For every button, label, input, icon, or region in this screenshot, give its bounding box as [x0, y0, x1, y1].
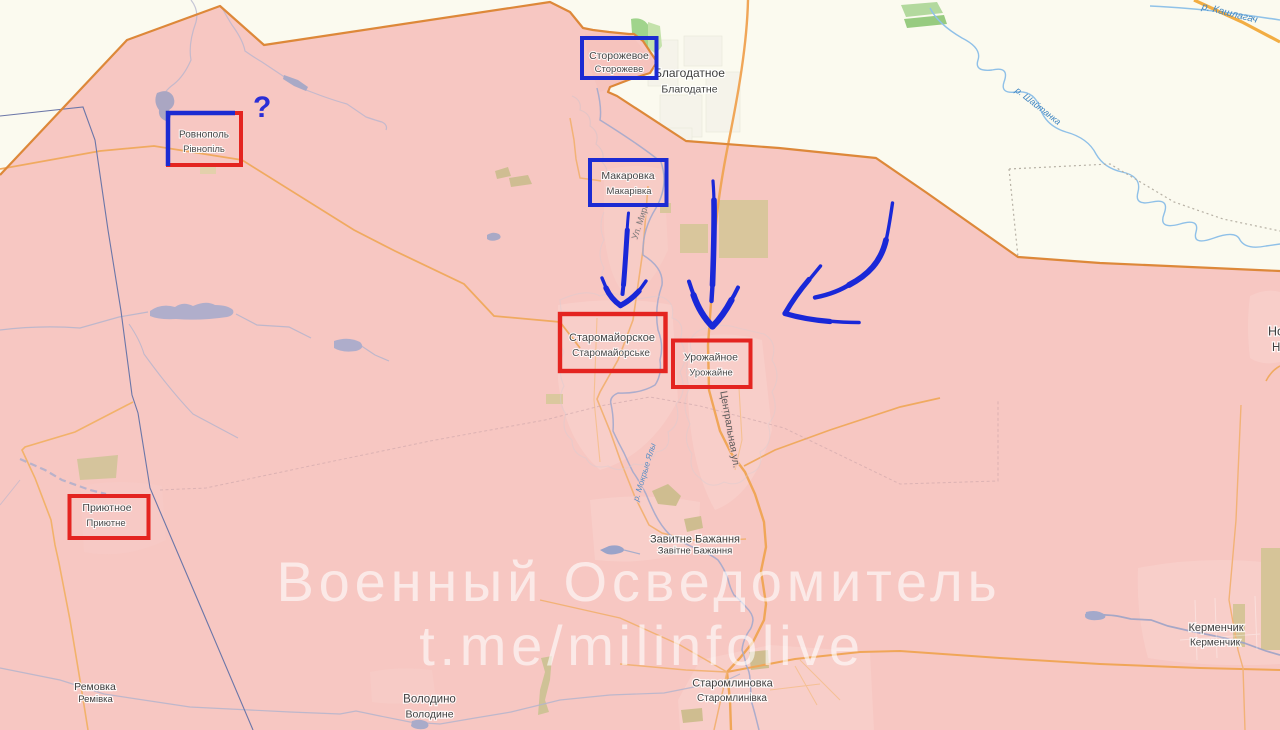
svg-text:Завитне Бажання: Завитне Бажання — [650, 534, 740, 546]
svg-text:Старомайорское: Старомайорское — [569, 332, 655, 344]
svg-text:t.me/milinfolive: t.me/milinfolive — [419, 614, 865, 677]
svg-text:Урожайне: Урожайне — [689, 368, 733, 379]
svg-text:Старомайорське: Старомайорське — [572, 348, 650, 359]
svg-text:Приютне: Приютне — [86, 518, 125, 529]
svg-text:Ново: Ново — [1268, 325, 1280, 339]
svg-text:Рівнопіль: Рівнопіль — [183, 144, 225, 155]
svg-text:Старомлинівка: Старомлинівка — [697, 693, 767, 704]
svg-text:Благодатне: Благодатне — [661, 84, 717, 96]
svg-text:Старомлиновка: Старомлиновка — [692, 678, 773, 690]
svg-text:Керменчик: Керменчик — [1190, 638, 1241, 649]
svg-text:Володине: Володине — [405, 709, 453, 721]
svg-text:Ремівка: Ремівка — [78, 694, 113, 705]
svg-text:Макарівка: Макарівка — [606, 186, 652, 197]
svg-text:?: ? — [253, 91, 271, 124]
svg-text:Благодатное: Благодатное — [654, 66, 725, 80]
svg-text:Керменчик: Керменчик — [1188, 622, 1243, 634]
svg-text:Ровнополь: Ровнополь — [179, 130, 229, 141]
svg-text:Нове: Нове — [1272, 342, 1280, 354]
svg-text:Сторожевое: Сторожевое — [589, 50, 649, 62]
svg-text:Макаровка: Макаровка — [601, 170, 654, 182]
svg-text:Володино: Володино — [403, 694, 456, 706]
svg-text:Сторожеве: Сторожеве — [595, 64, 644, 75]
svg-text:Военный Осведомитель: Военный Осведомитель — [277, 550, 1002, 613]
svg-text:Приютное: Приютное — [82, 502, 131, 514]
svg-text:Урожайное: Урожайное — [684, 352, 738, 364]
svg-text:Ремовка: Ремовка — [74, 681, 116, 693]
